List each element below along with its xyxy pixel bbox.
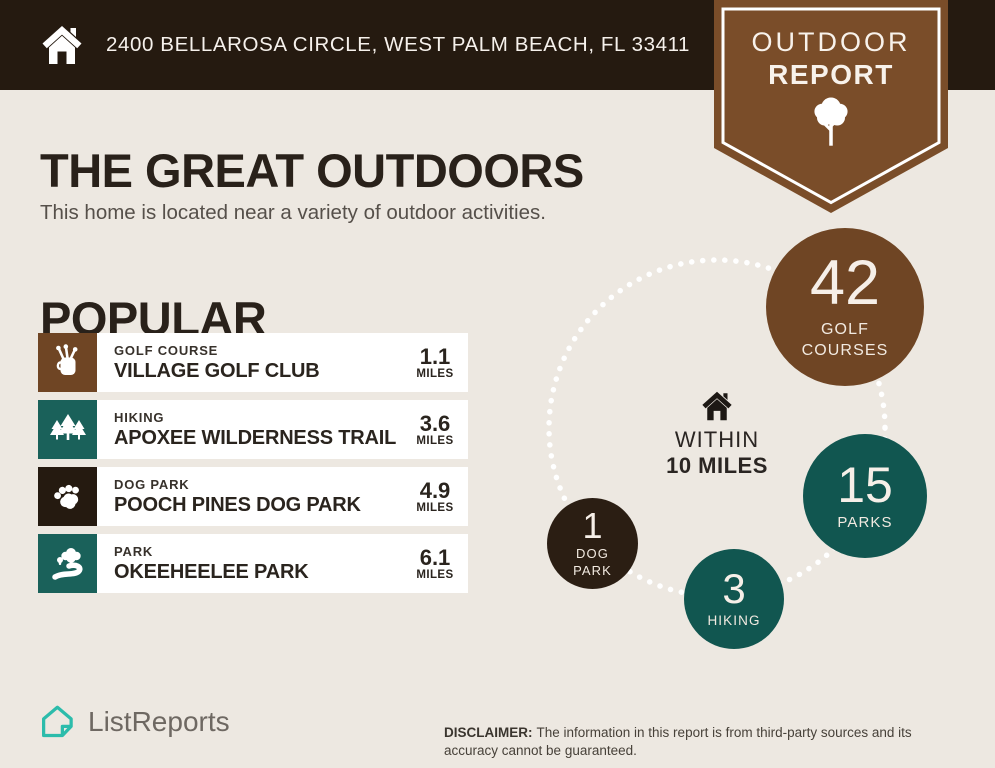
outdoor-report-badge: OUTDOOR REPORT	[714, 0, 948, 218]
place-category: PARK	[114, 544, 406, 559]
paw-icon	[38, 467, 97, 526]
place-distance: 6.1 MILES	[406, 534, 468, 593]
place-distance: 1.1 MILES	[406, 333, 468, 392]
disclaimer-text: DISCLAIMER:The information in this repor…	[444, 724, 960, 762]
place-category: GOLF COURSE	[114, 343, 406, 358]
page-title: THE GREAT OUTDOORS	[40, 147, 584, 194]
place-row-dog-park: DOG PARK POOCH PINES DOG PARK 4.9 MILES	[38, 467, 468, 526]
brand-name: ListReports	[88, 706, 230, 738]
place-name: VILLAGE GOLF CLUB	[114, 360, 406, 383]
within-label: WITHIN	[632, 427, 802, 453]
place-distance: 4.9 MILES	[406, 467, 468, 526]
bubble-parks: 15 PARKS	[803, 434, 927, 558]
place-name: APOXEE WILDERNESS TRAIL	[114, 427, 406, 450]
property-address: 2400 BELLAROSA CIRCLE, WEST PALM BEACH, …	[106, 33, 690, 57]
bubble-dog-park: 1 DOG PARK	[547, 498, 638, 589]
bubble-golf-courses: 42 GOLF COURSES	[766, 228, 924, 386]
park-path-icon	[38, 534, 97, 593]
badge-title-line2: REPORT	[714, 59, 948, 91]
miles-label: 10 MILES	[632, 453, 802, 479]
place-category: DOG PARK	[114, 477, 406, 492]
place-distance: 3.6 MILES	[406, 400, 468, 459]
popular-places-list: GOLF COURSE VILLAGE GOLF CLUB 1.1 MILES	[38, 333, 468, 601]
golf-bag-icon	[38, 333, 97, 392]
page-subtitle: This home is located near a variety of o…	[40, 201, 546, 225]
place-category: HIKING	[114, 410, 406, 425]
place-name: OKEEHEELEE PARK	[114, 561, 406, 584]
outdoor-report-page: 2400 BELLAROSA CIRCLE, WEST PALM BEACH, …	[0, 0, 995, 768]
home-icon	[38, 21, 86, 69]
radius-center-label: WITHIN 10 MILES	[632, 388, 802, 479]
place-row-park: PARK OKEEHEELEE PARK 6.1 MILES	[38, 534, 468, 593]
badge-title-line1: OUTDOOR	[714, 27, 948, 58]
listreports-logo-icon	[38, 702, 78, 742]
place-row-golf: GOLF COURSE VILLAGE GOLF CLUB 1.1 MILES	[38, 333, 468, 392]
bubble-hiking: 3 HIKING	[684, 549, 784, 649]
place-row-hiking: HIKING APOXEE WILDERNESS TRAIL 3.6 MILES	[38, 400, 468, 459]
home-icon	[632, 388, 802, 424]
place-name: POOCH PINES DOG PARK	[114, 494, 406, 517]
tree-icon	[714, 96, 948, 154]
pine-trees-icon	[38, 400, 97, 459]
listreports-brand: ListReports	[38, 702, 230, 742]
